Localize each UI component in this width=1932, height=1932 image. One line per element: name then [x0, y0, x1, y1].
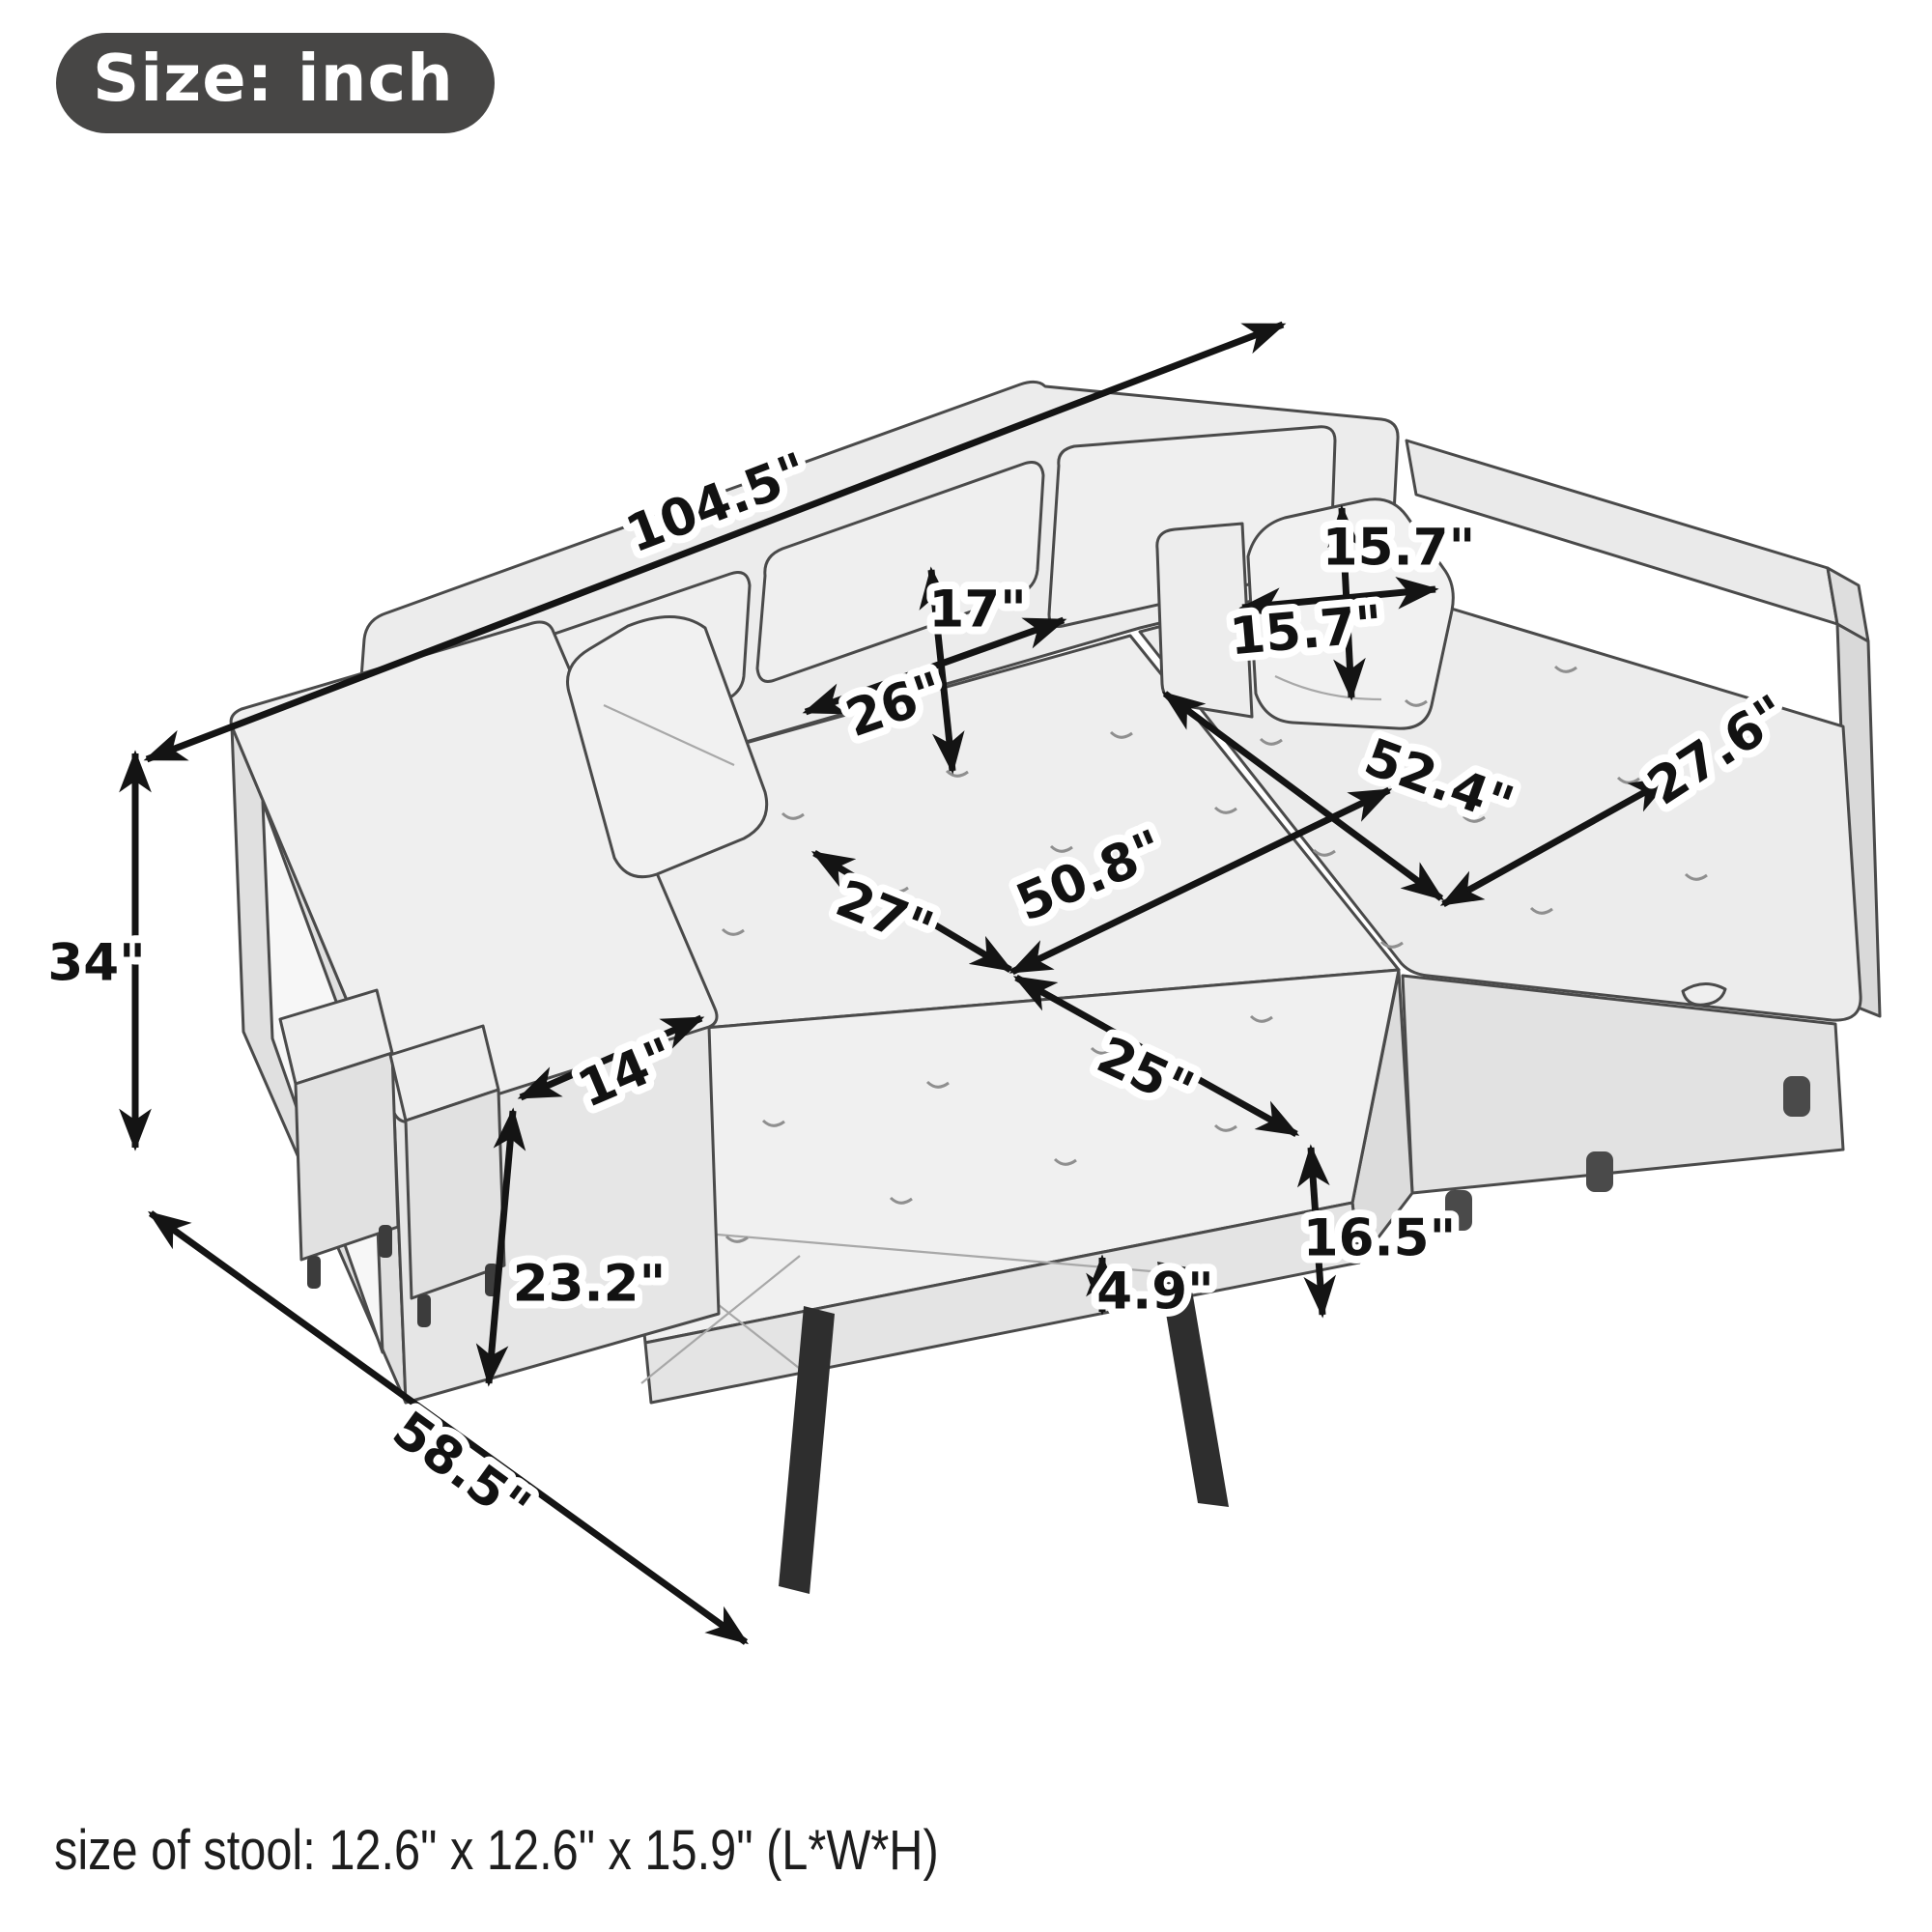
dim-label-mattress-thickness: 4.9" [1096, 1263, 1214, 1321]
chaise-foot-middle [1586, 1151, 1613, 1192]
dim-label-bed-height: 16.5" [1303, 1209, 1456, 1268]
sofa-dimension-diagram: 104.5" 34" 58.5" 17" 26" 15.7" 15.7" 52.… [0, 0, 1932, 1932]
dim-label-arm-front-height: 23.2" [513, 1255, 666, 1314]
dimension-diagram-page: 104.5" 34" 58.5" 17" 26" 15.7" 15.7" 52.… [0, 0, 1932, 1932]
chaise-foot-right [1783, 1076, 1810, 1117]
dim-label-pillow-height: 15.7" [1322, 519, 1475, 578]
dim-label-back-cushion-height: 17" [928, 581, 1026, 639]
dim-label-overall-height: 34" [47, 934, 145, 993]
sofa-illustration [231, 382, 1880, 1594]
size-unit-badge: Size: inch [56, 33, 495, 133]
stool-1 [280, 990, 398, 1289]
stool-size-note: size of stool: 12.6" x 12.6" x 15.9" (L*… [54, 1818, 939, 1883]
dim-label-overall-depth: 58.5" [382, 1401, 540, 1538]
